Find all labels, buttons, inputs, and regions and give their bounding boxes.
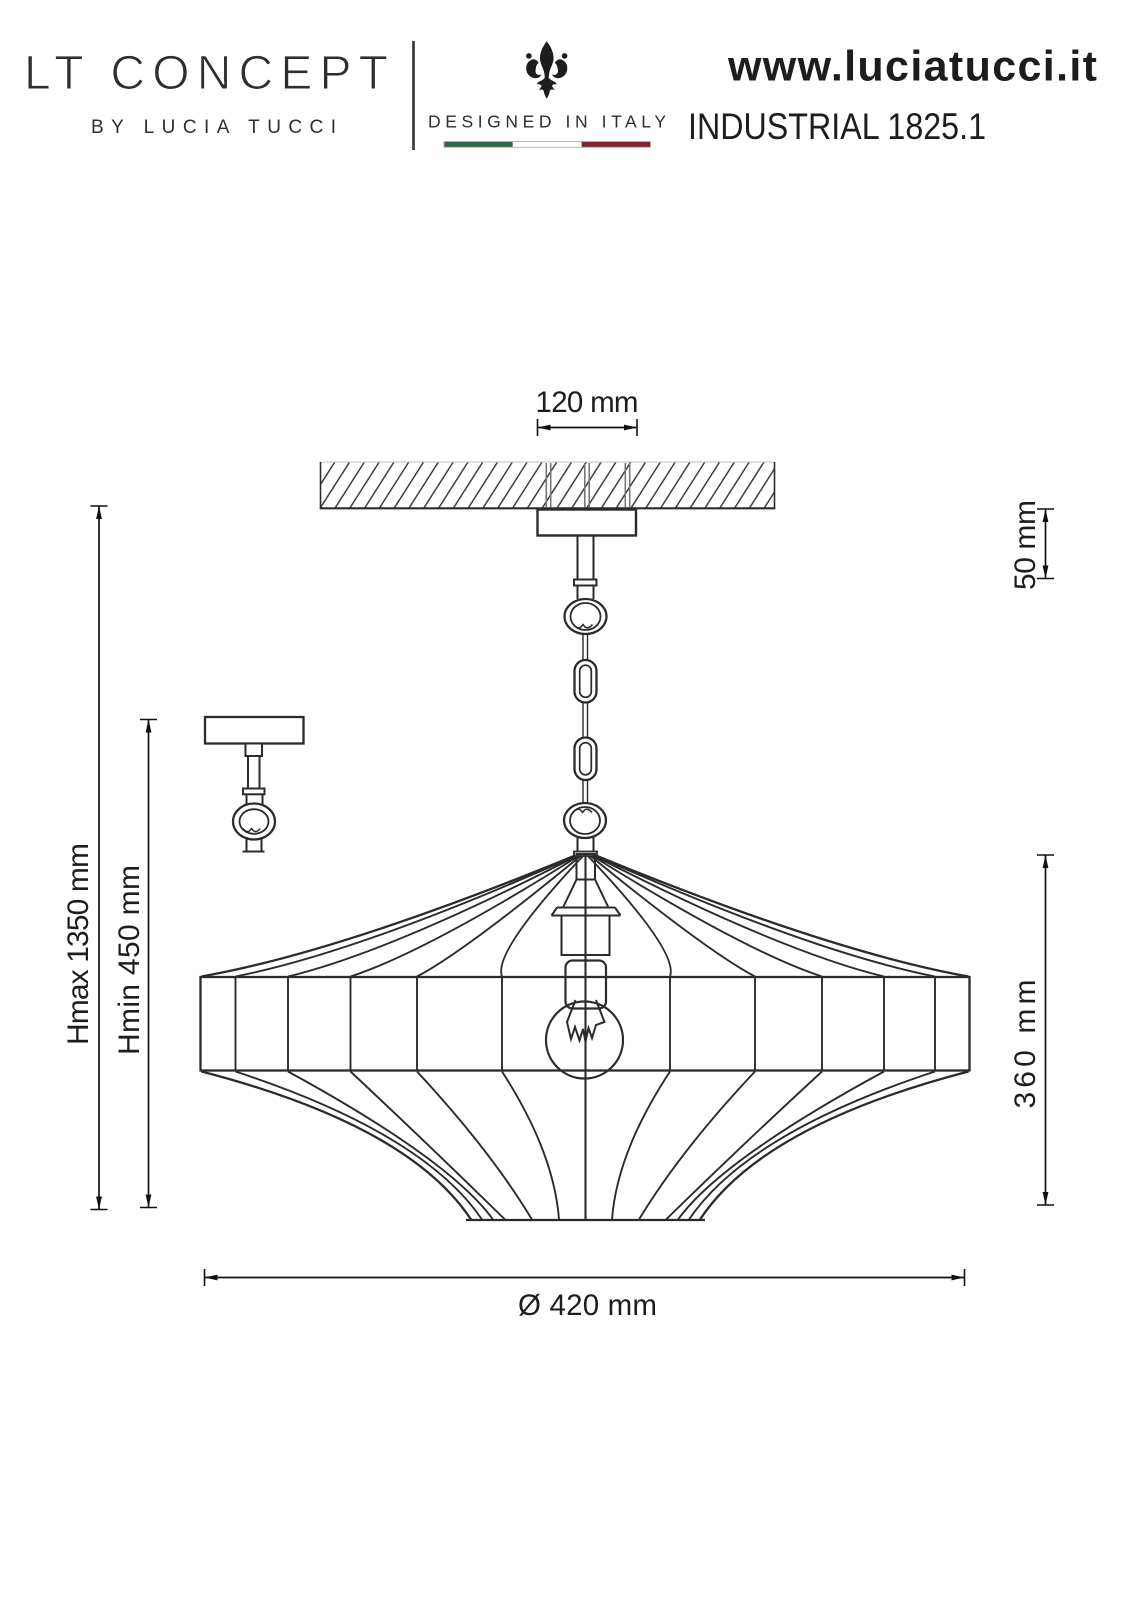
- svg-text:LT CONCEPT: LT CONCEPT: [24, 47, 388, 100]
- svg-text:Hmax 1350 mm: Hmax 1350 mm: [62, 843, 95, 1045]
- svg-text:BY LUCIA TUCCI: BY LUCIA TUCCI: [91, 117, 336, 138]
- svg-text:DESIGNED IN ITALY: DESIGNED IN ITALY: [428, 112, 666, 132]
- svg-text:50 mm: 50 mm: [1009, 500, 1042, 590]
- svg-text:360 mm: 360 mm: [1009, 980, 1042, 1109]
- svg-text:120 mm: 120 mm: [536, 386, 639, 419]
- svg-text:Hmin 450 mm: Hmin 450 mm: [113, 865, 146, 1055]
- svg-text:INDUSTRIAL 1825.1: INDUSTRIAL 1825.1: [688, 106, 986, 147]
- svg-text:www.luciatucci.it: www.luciatucci.it: [727, 43, 1097, 91]
- svg-text:Ø 420 mm: Ø 420 mm: [518, 1289, 657, 1322]
